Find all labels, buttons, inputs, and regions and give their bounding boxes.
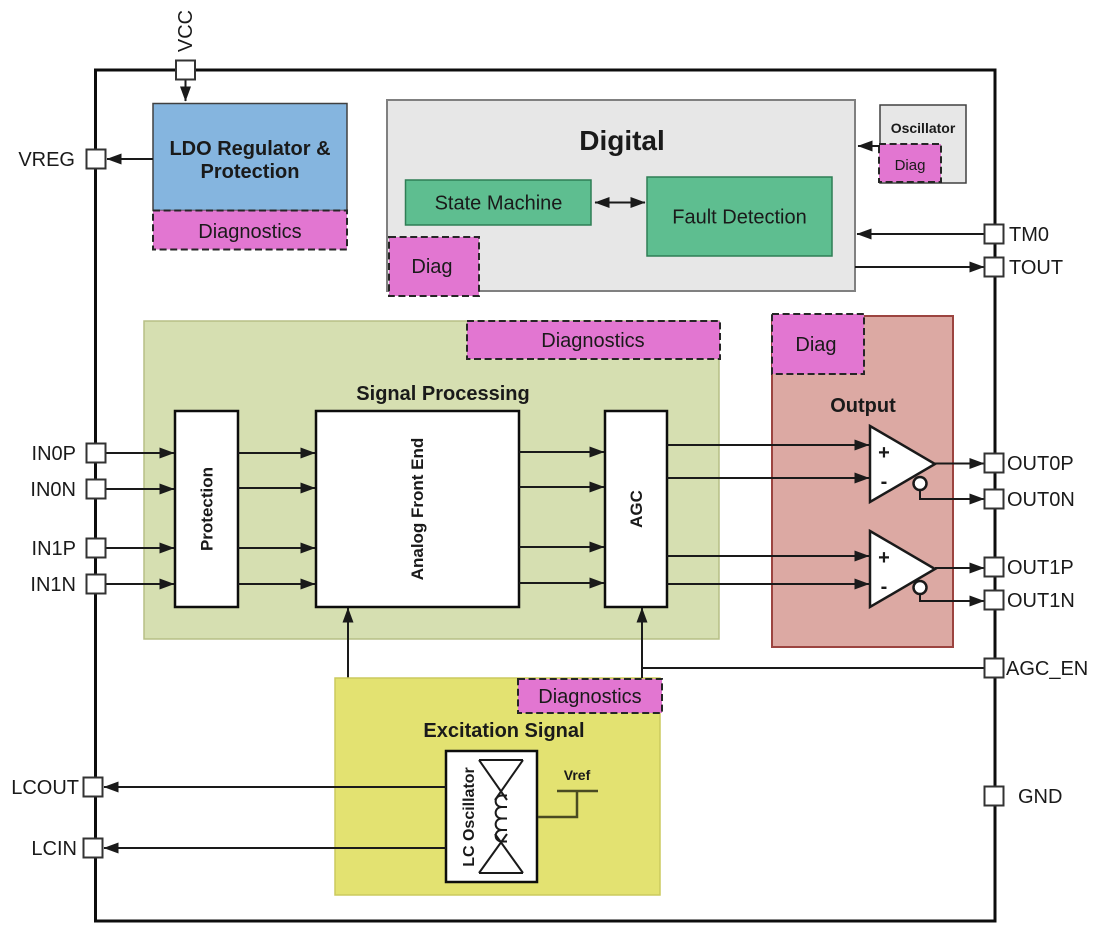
- svg-text:VREG: VREG: [18, 149, 75, 171]
- svg-text:VCC: VCC: [175, 10, 197, 52]
- svg-text:Signal Processing: Signal Processing: [356, 383, 529, 405]
- svg-text:OUT1N: OUT1N: [1007, 590, 1075, 612]
- svg-text:IN1P: IN1P: [32, 538, 76, 560]
- svg-text:GND: GND: [1018, 786, 1062, 808]
- svg-text:OUT0N: OUT0N: [1007, 489, 1075, 511]
- svg-text:Output: Output: [830, 395, 896, 417]
- svg-text:LCOUT: LCOUT: [11, 777, 79, 799]
- svg-text:Diag: Diag: [411, 256, 452, 278]
- svg-text:-: -: [881, 471, 888, 493]
- svg-text:LC Oscillator: LC Oscillator: [461, 767, 478, 867]
- svg-text:LCIN: LCIN: [31, 838, 77, 860]
- svg-text:IN0N: IN0N: [30, 479, 76, 501]
- svg-text:Diag: Diag: [795, 334, 836, 356]
- svg-text:Protection: Protection: [201, 161, 300, 183]
- svg-text:-: -: [881, 576, 888, 598]
- svg-text:Protection: Protection: [198, 467, 217, 551]
- svg-text:OUT0P: OUT0P: [1007, 453, 1074, 475]
- svg-text:Diag: Diag: [895, 157, 926, 174]
- svg-text:Vref: Vref: [564, 767, 591, 783]
- svg-text:LDO Regulator &: LDO Regulator &: [169, 138, 330, 160]
- svg-text:State Machine: State Machine: [435, 193, 563, 215]
- svg-text:Oscillator: Oscillator: [891, 120, 956, 136]
- svg-text:Digital: Digital: [579, 125, 665, 156]
- svg-text:Fault Detection: Fault Detection: [672, 207, 807, 229]
- svg-text:TM0: TM0: [1009, 224, 1049, 246]
- svg-text:+: +: [878, 442, 890, 464]
- svg-text:AGC_EN: AGC_EN: [1006, 658, 1088, 680]
- svg-text:TOUT: TOUT: [1009, 257, 1063, 279]
- svg-text:Diagnostics: Diagnostics: [541, 330, 644, 352]
- svg-text:OUT1P: OUT1P: [1007, 557, 1074, 579]
- svg-text:Diagnostics: Diagnostics: [538, 686, 641, 708]
- svg-text:AGC: AGC: [627, 490, 646, 528]
- svg-text:+: +: [878, 547, 890, 569]
- svg-text:Excitation Signal: Excitation Signal: [423, 720, 584, 742]
- svg-text:IN1N: IN1N: [30, 574, 76, 596]
- svg-text:Diagnostics: Diagnostics: [198, 221, 301, 243]
- svg-text:IN0P: IN0P: [32, 443, 76, 465]
- svg-text:Analog Front End: Analog Front End: [408, 438, 427, 581]
